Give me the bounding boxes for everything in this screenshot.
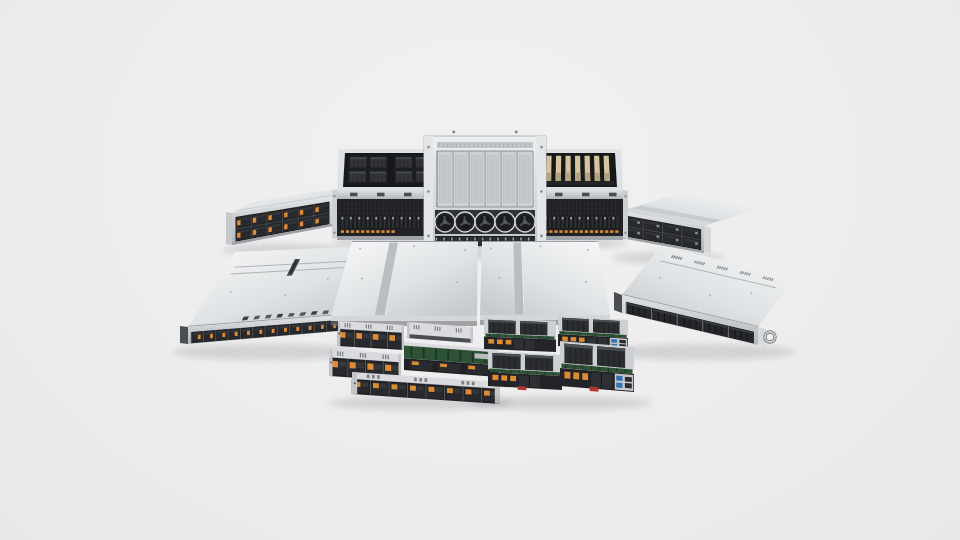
product-photo-canvas xyxy=(0,0,960,540)
server-gpu-8u-center xyxy=(419,128,551,260)
server-twin-chassis-right xyxy=(468,241,652,410)
server-fleet-photo xyxy=(0,0,960,540)
server-server-1u-mid-right xyxy=(605,246,795,360)
